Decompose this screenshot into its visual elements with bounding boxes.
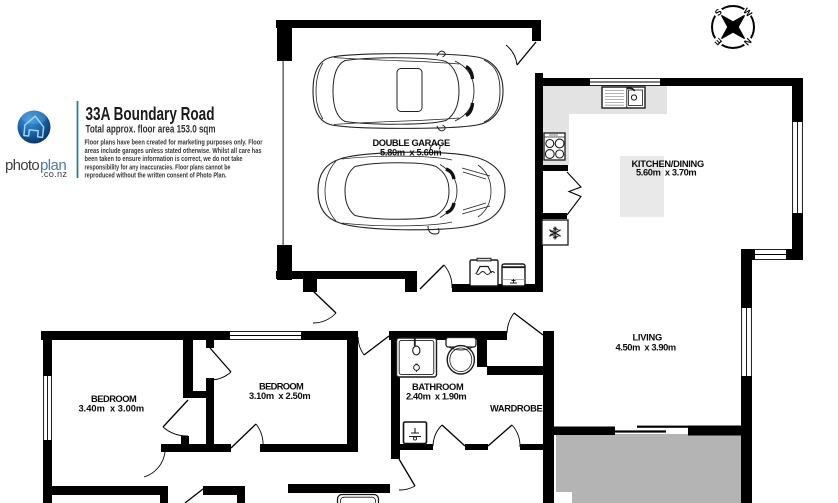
svg-text:33A Boundary Road: 33A Boundary Road xyxy=(86,104,215,124)
svg-text:4.50m x 3.90m: 4.50m x 3.90m xyxy=(616,342,677,352)
svg-text:5.60m x 3.70m: 5.60m x 3.70m xyxy=(636,168,697,178)
svg-text:DOUBLE GARAGE: DOUBLE GARAGE xyxy=(373,138,451,148)
svg-text:reproduced without the written: reproduced without the written consent o… xyxy=(85,171,227,180)
svg-text:3.40m x 3.00m: 3.40m x 3.00m xyxy=(79,404,145,414)
svg-text:2.40m x 1.90m: 2.40m x 1.90m xyxy=(406,391,467,401)
svg-text:3.10m x 2.50m: 3.10m x 2.50m xyxy=(249,391,311,401)
svg-text:WARDROBE: WARDROBE xyxy=(490,403,543,413)
svg-text:5.80m x 5.60m: 5.80m x 5.60m xyxy=(380,147,442,157)
svg-text:Total approx. floor area 153.0: Total approx. floor area 153.0 sqm xyxy=(86,123,216,135)
svg-text:BEDROOM: BEDROOM xyxy=(91,394,137,404)
svg-text:.co.nz: .co.nz xyxy=(41,169,67,179)
svg-text:LIVING: LIVING xyxy=(633,333,663,343)
